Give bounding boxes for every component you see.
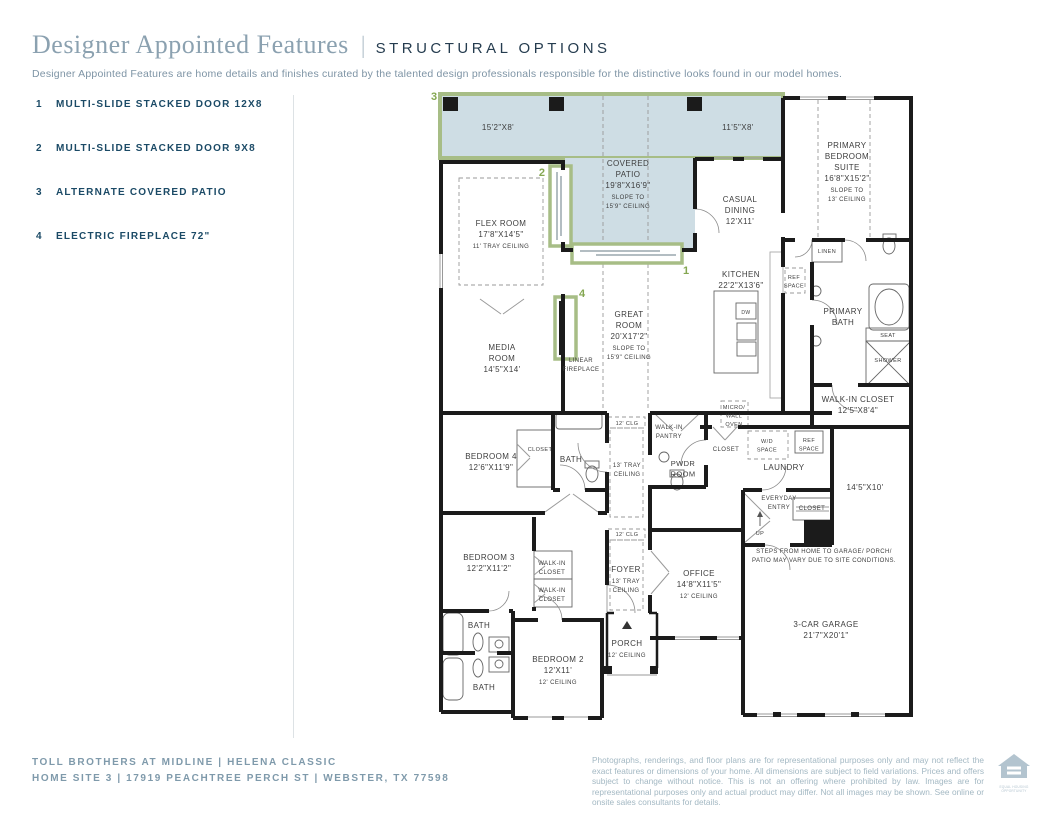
label-micro-wall-oven: MICRO/WALLOVEN — [723, 405, 745, 428]
header: Designer Appointed Features|STRUCTURAL O… — [32, 30, 1022, 80]
label-walk-in-closet-primary: WALK-IN CLOSET12'5"X8'4" — [822, 395, 895, 415]
label-seat: SEAT — [880, 333, 896, 339]
legend-item-label: ALTERNATE COVERED PATIO — [56, 187, 227, 198]
label-walk-in-pantry: WALK-INPANTRY — [655, 425, 683, 440]
label-laundry: LAUNDRY — [764, 463, 805, 472]
floor-plan: 15'2"X8'11'5"X8'COVEREDPATIO19'8"X16'9"S… — [428, 85, 922, 740]
label-wd-space: W/DSPACE — [757, 439, 777, 454]
label-linen: LINEN — [818, 249, 836, 255]
title-divider: | — [361, 33, 366, 59]
equal-housing-logo: EQUAL HOUSING OPPORTUNITY — [996, 753, 1032, 793]
label-linear-fireplace: LINEARFIREPLACE — [563, 358, 600, 373]
label-bath-bed4: BATH — [560, 455, 582, 464]
label-great-room: GREATROOM20'X17'2"SLOPE TO15'9" CEILING — [607, 310, 651, 361]
label-shower: SHOWER — [874, 358, 901, 364]
label-bedroom-4: BEDROOM 412'6"X11'9" — [465, 452, 517, 472]
label-closet-hall: CLOSET — [713, 447, 739, 453]
label-bedroom-2: BEDROOM 212'X11'12' CEILING — [532, 655, 584, 686]
label-marker-3: 3 — [431, 91, 437, 103]
vertical-divider — [293, 95, 294, 738]
up-arrow-head — [757, 511, 763, 517]
label-porch: PORCH12' CEILING — [608, 639, 646, 659]
label-bath-bed3: BATH — [468, 621, 490, 630]
label-tray-13-hall: 13' TRAYCEILING — [613, 463, 641, 478]
label-bedroom-3: BEDROOM 312'2"X11'2" — [463, 553, 515, 573]
page-title: Designer Appointed Features — [32, 30, 349, 59]
label-closet-bed4: CLOSET — [528, 447, 553, 453]
label-primary-bedroom-suite: PRIMARYBEDROOMSUITE16'8"X15'2"SLOPE TO13… — [824, 141, 869, 203]
label-media-room: MEDIAROOM14'5"X14' — [483, 343, 520, 374]
label-pwdr-room: PWDRROOM — [671, 459, 696, 479]
label-garage: 3-CAR GARAGE21'7"X20'1" — [793, 620, 858, 640]
footer-disclaimer: Photographs, renderings, and floor plans… — [592, 755, 984, 808]
legend-item-number: 3 — [36, 187, 56, 198]
legend-item-4: 4ELECTRIC FIREPLACE 72" — [36, 231, 286, 242]
legend-item-1: 1MULTI-SLIDE STACKED DOOR 12X8 — [36, 99, 286, 110]
label-clg-12-upper: 12' CLG — [616, 421, 639, 427]
label-dw: DW — [741, 310, 750, 316]
label-steps-note: STEPS FROM HOME TO GARAGE/ PORCH/PATIO M… — [752, 549, 896, 564]
label-ref-space-laundry: REFSPACE — [799, 438, 819, 453]
footer-community: TOLL BROTHERS AT MIDLINE | HELENA CLASSI… — [32, 757, 337, 768]
label-flex-room: FLEX ROOM17'8"X14'5"11' TRAY CEILING — [473, 219, 529, 250]
footer-address: HOME SITE 3 | 17919 PEACHTREE PERCH ST |… — [32, 773, 449, 784]
legend-item-label: ELECTRIC FIREPLACE 72" — [56, 231, 211, 242]
legend-item-number: 2 — [36, 143, 56, 154]
label-up: UP — [756, 531, 764, 537]
label-foyer: FOYER13' TRAYCEILING — [611, 565, 641, 594]
label-walk-in-closet-bed3-b: WALK-INCLOSET — [538, 588, 566, 603]
label-bath-bed2: BATH — [473, 683, 495, 692]
equal-housing-house-icon — [997, 753, 1031, 779]
porch-entry-arrow — [622, 621, 632, 629]
label-casual-dining: CASUALDINING12'X11' — [723, 195, 758, 226]
label-office: OFFICE14'8"X11'5"12' CEILING — [677, 569, 722, 600]
label-alt-patio-left-dim: 15'2"X8' — [482, 123, 514, 132]
label-marker-1: 1 — [683, 265, 689, 277]
label-clg-12-lower: 12' CLG — [616, 532, 639, 538]
header-description: Designer Appointed Features are home det… — [32, 68, 1022, 80]
label-primary-bath: PRIMARYBATH — [823, 307, 862, 327]
label-alt-patio-right-dim: 11'5"X8' — [722, 123, 754, 132]
equal-housing-caption: EQUAL HOUSING OPPORTUNITY — [996, 785, 1032, 793]
label-kitchen: KITCHEN22'2"X13'6" — [718, 270, 763, 290]
label-garage-bay-dim: 14'5"X10' — [846, 483, 883, 492]
legend-item-number: 4 — [36, 231, 56, 242]
label-marker-2: 2 — [539, 167, 545, 179]
legend-item-number: 1 — [36, 99, 56, 110]
legend-item-label: MULTI-SLIDE STACKED DOOR 9X8 — [56, 143, 256, 154]
legend-item-label: MULTI-SLIDE STACKED DOOR 12X8 — [56, 99, 263, 110]
legend-item-2: 2MULTI-SLIDE STACKED DOOR 9X8 — [36, 143, 286, 154]
label-everyday-entry: EVERYDAYENTRY — [761, 496, 796, 511]
label-ref-space-kitchen: REFSPACE — [784, 275, 804, 290]
page: Designer Appointed Features|STRUCTURAL O… — [0, 0, 1055, 815]
options-legend: 1MULTI-SLIDE STACKED DOOR 12X82MULTI-SLI… — [36, 99, 286, 275]
subtitle-tag: STRUCTURAL OPTIONS — [376, 40, 611, 57]
label-marker-4: 4 — [579, 288, 586, 300]
legend-item-3: 3ALTERNATE COVERED PATIO — [36, 187, 286, 198]
label-closet-entry: CLOSET — [799, 506, 825, 512]
